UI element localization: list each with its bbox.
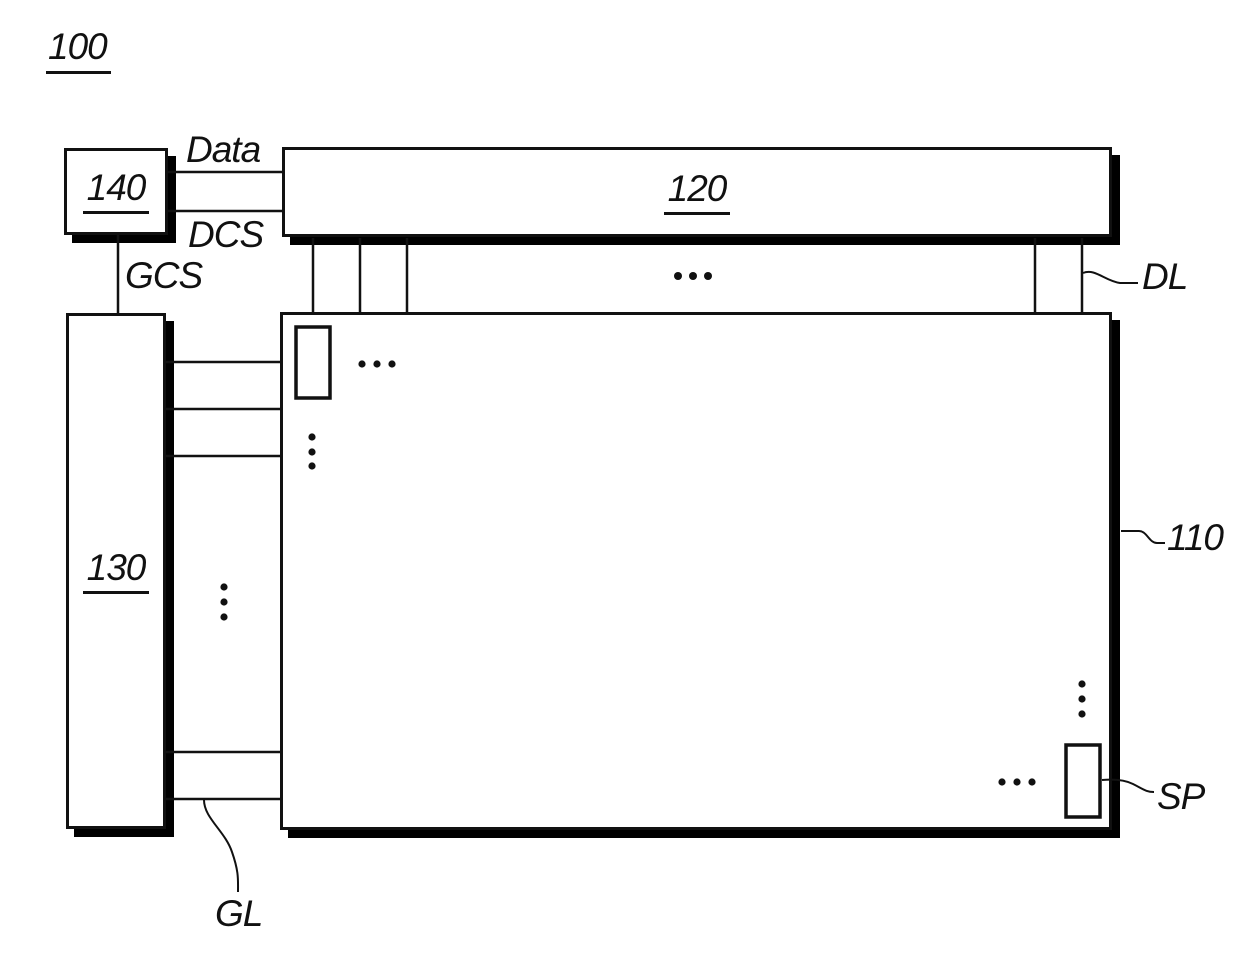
block-timing-controller: 140 [64,148,168,235]
figure-number-label: 100 [46,28,111,74]
block-display-panel [280,312,1112,830]
gate-driver-ref-label: 130 [83,549,150,594]
block-data-driver: 120 [282,147,1112,237]
gcs-signal-label: GCS [125,257,202,294]
data-signal-label: Data [186,131,260,168]
ellipsis-gate-lines-middle [220,583,227,620]
display-panel-ref-label: 110 [1167,519,1223,556]
data-lines-group [313,238,1082,312]
data-driver-ref-label: 120 [664,170,731,215]
gl-leader-line [204,800,238,892]
dl-leader-line [1083,272,1138,283]
patent-block-diagram: 140 120 130 [0,0,1240,962]
gate-lines-group [164,362,281,799]
timing-controller-ref-label: 140 [83,169,150,214]
block-gate-driver: 130 [66,313,166,829]
data-line-dl-label: DL [1142,258,1187,295]
panel-110-leader-line [1121,531,1165,543]
subpixel-sp-label: SP [1157,778,1204,815]
dcs-signal-label: DCS [188,216,263,253]
gate-line-gl-label: GL [215,895,262,932]
ellipsis-data-lines-top [674,272,712,280]
